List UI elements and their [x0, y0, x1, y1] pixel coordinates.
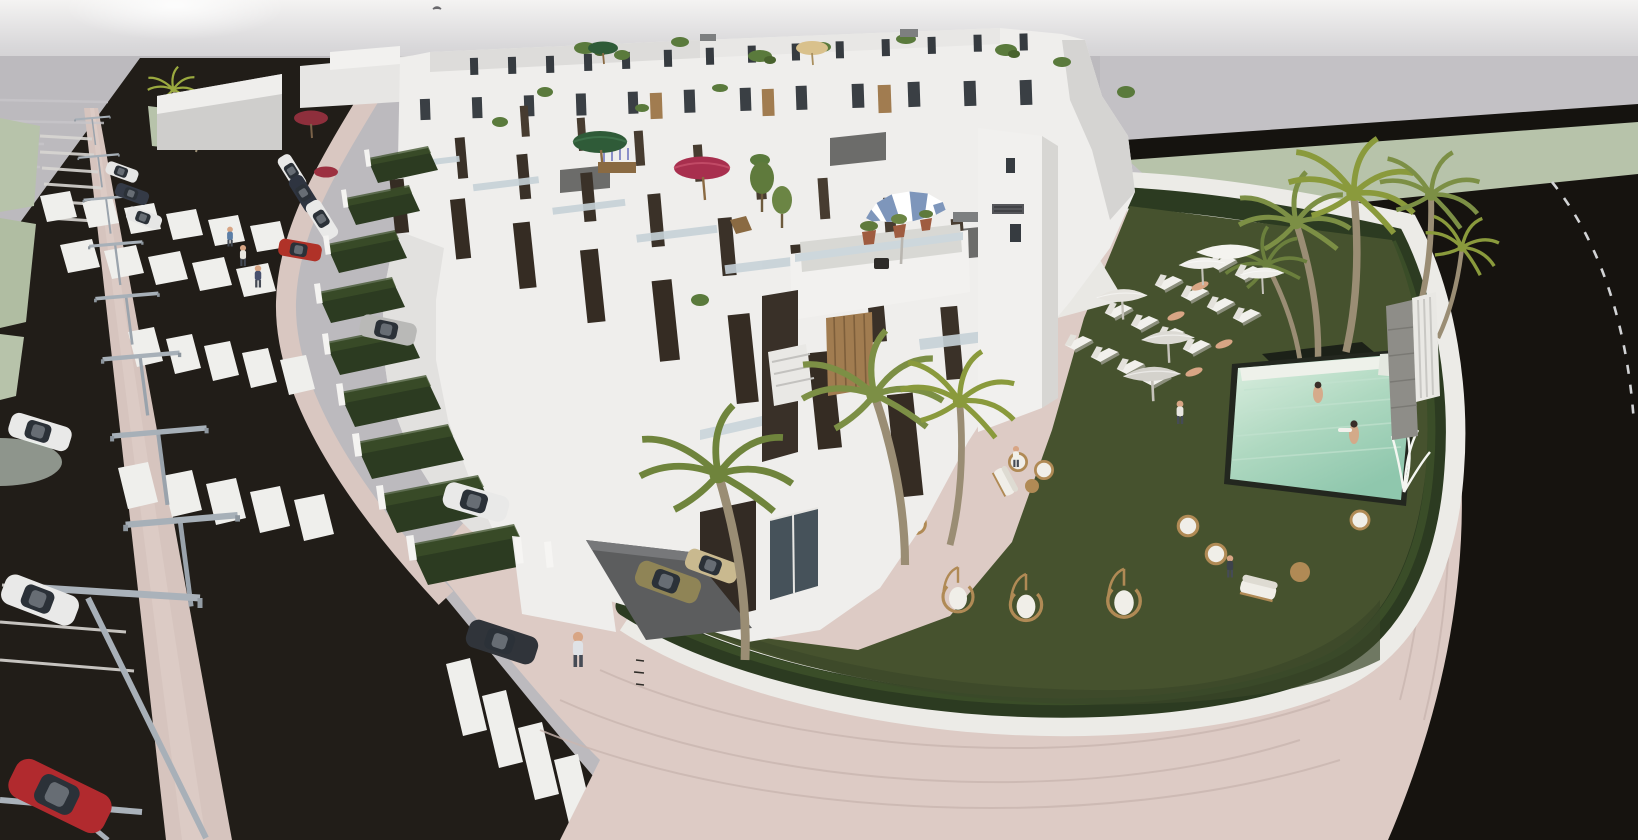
wicker-chair — [1178, 516, 1198, 536]
wicker-chair — [1206, 544, 1226, 564]
wicker-chair — [1351, 511, 1369, 529]
architectural-render — [0, 0, 1638, 840]
side-table — [1025, 479, 1039, 493]
side-table — [1290, 562, 1310, 582]
glass-door — [770, 508, 818, 600]
wood-door — [650, 93, 663, 119]
grass-patch — [0, 118, 40, 212]
wood-door — [878, 85, 892, 113]
wicker-chair — [1035, 461, 1052, 478]
tower-window — [1010, 224, 1021, 242]
bird — [433, 7, 441, 9]
vent-grille — [992, 204, 1024, 214]
wood-slat-door — [826, 312, 874, 396]
render-canvas — [0, 0, 1638, 840]
wood-door — [762, 89, 775, 116]
tower-window — [1006, 158, 1015, 173]
terrace-table — [874, 258, 889, 269]
tower-side — [1042, 136, 1058, 408]
umbrella-red-small — [314, 167, 338, 178]
slatted-gate — [1412, 292, 1440, 402]
